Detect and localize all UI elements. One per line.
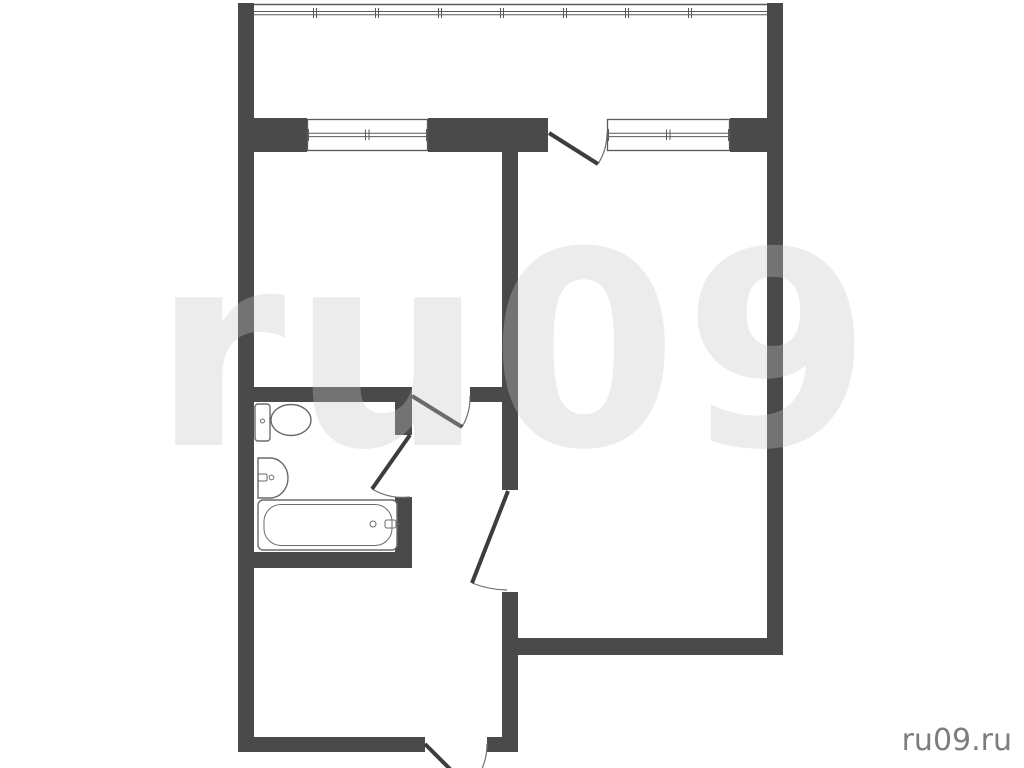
glazing-mullion-ticks <box>314 8 692 18</box>
wall-front-pier-right <box>730 118 783 152</box>
watermark-text-large: ru09 <box>152 194 877 509</box>
site-label: ru09.ru <box>902 723 1012 758</box>
wall-front-pier-left <box>238 118 307 152</box>
wall-right-room-bottom <box>502 638 783 655</box>
hall-door-arc <box>472 583 507 590</box>
wall-bottom-step <box>487 737 518 752</box>
floor-plan-canvas: ru09 ru09.ru ru09.ru <box>0 0 1024 768</box>
floor-plan-page: ru09 ru09.ru ru09.ru <box>0 0 1024 768</box>
entry-door-leaf <box>425 744 469 768</box>
entry-door-arc <box>469 744 487 768</box>
balcony-glazing-icon <box>254 5 767 19</box>
balcony-door-leaf <box>549 133 598 164</box>
wall-center-lower <box>502 592 518 752</box>
wall-bottom-left <box>238 737 425 752</box>
window-icon-left <box>308 120 428 151</box>
wall-bathroom-bottom <box>238 552 412 568</box>
balcony-door-arc <box>598 133 607 164</box>
window-icon-right <box>608 120 730 151</box>
wall-front-pier-mid <box>428 118 548 152</box>
